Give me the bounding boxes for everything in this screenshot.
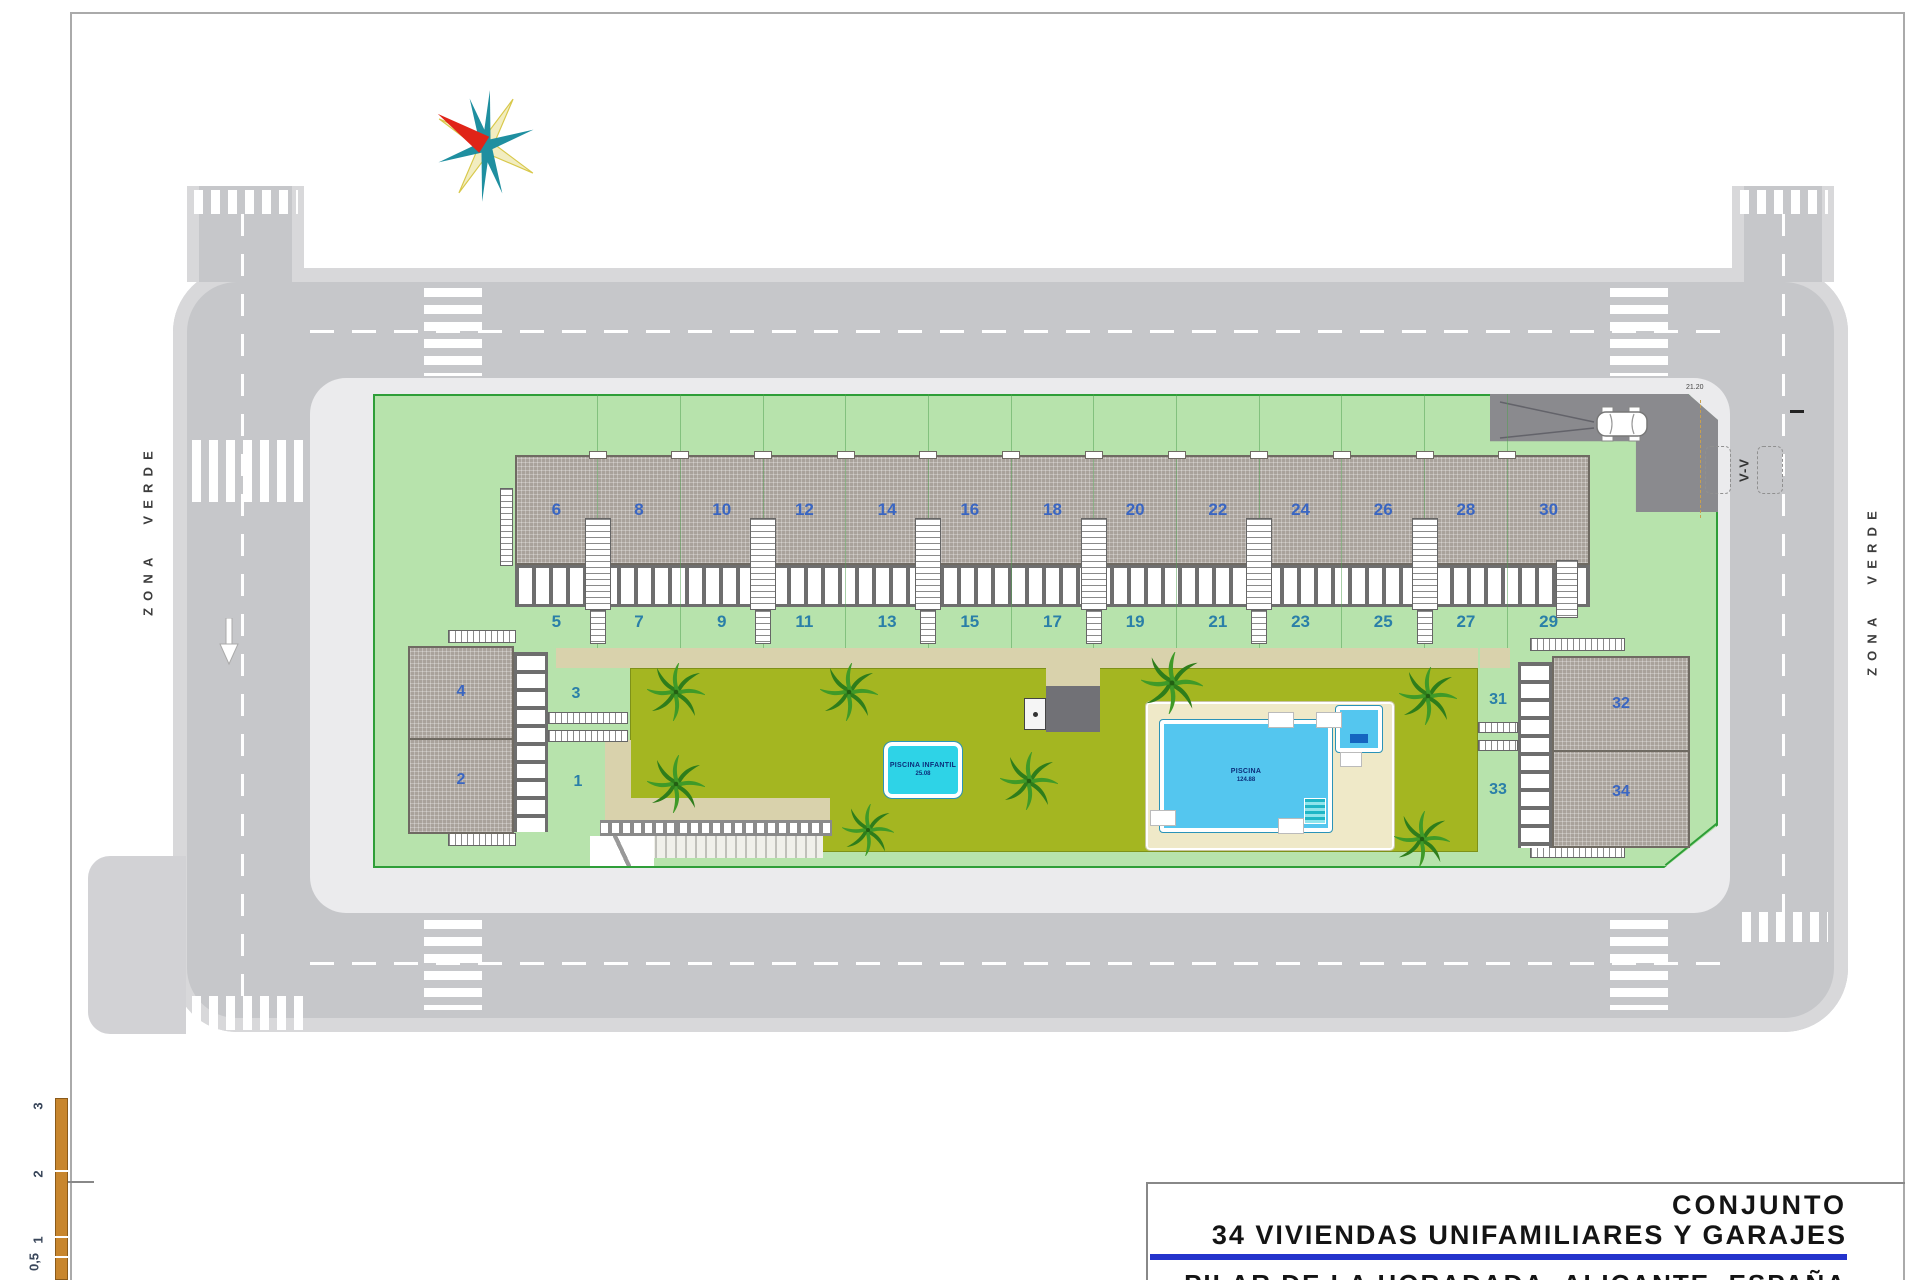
stairwell	[750, 518, 776, 610]
stairs	[1530, 638, 1625, 651]
scale-label: 0,5	[27, 1253, 42, 1271]
palm-tree	[1000, 752, 1058, 810]
palm-tree	[1394, 811, 1450, 867]
plot-divider-line	[1011, 394, 1012, 648]
stairwell	[1081, 518, 1107, 610]
section-marker: V-V	[1737, 458, 1752, 482]
stairwell	[585, 518, 611, 610]
stairwell-lower	[1417, 610, 1433, 644]
titleblock-divider	[1146, 1182, 1148, 1280]
lane-line	[241, 214, 244, 998]
roof-notch	[1085, 451, 1103, 459]
frame-left	[70, 12, 72, 1280]
plot-divider-line	[1176, 394, 1177, 648]
roof-notch	[1002, 451, 1020, 459]
palm-tree	[647, 663, 705, 721]
project-title: 34 VIVIENDAS UNIFAMILIARES Y GARAJES	[1150, 1220, 1847, 1250]
spa-pool	[1336, 706, 1382, 752]
crosswalk	[1742, 912, 1828, 942]
scale-label: 2	[31, 1170, 46, 1177]
pool-pad	[1150, 810, 1176, 826]
titleblock-separator	[1146, 1182, 1905, 1184]
scale-tick	[55, 1256, 68, 1258]
large-pool-area: 124.88	[1237, 777, 1255, 785]
pool-steps	[1304, 798, 1326, 824]
roof-notch	[671, 451, 689, 459]
garden-access-stairs	[548, 712, 628, 724]
roof-notch	[919, 451, 937, 459]
stairwell	[1556, 560, 1578, 618]
stairwell-lower	[1251, 610, 1267, 644]
parking-outline	[1757, 446, 1783, 494]
roof-notch	[837, 451, 855, 459]
stairwell	[500, 488, 513, 566]
north-tick	[1790, 410, 1804, 413]
house-number: 34	[1612, 783, 1630, 801]
left-building-divider	[408, 738, 514, 740]
house-number: 32	[1612, 695, 1630, 713]
palm-tree	[842, 804, 894, 856]
crosswalk	[1610, 920, 1668, 1010]
plot-divider-line	[1507, 394, 1508, 648]
house-number: 3	[572, 685, 581, 703]
zona-verde-left-label: ZONA VERDE	[141, 444, 156, 616]
roof-notch	[1498, 451, 1516, 459]
pool-pad	[1340, 752, 1362, 767]
roof-notch	[754, 451, 772, 459]
palm-tree	[647, 755, 705, 813]
left-building-roof	[408, 646, 514, 834]
stairwell	[1246, 518, 1272, 610]
scale-bar	[55, 1098, 68, 1280]
house-number: 1	[574, 773, 583, 791]
title-accent-rule	[1150, 1254, 1847, 1260]
frame-right	[1903, 12, 1905, 1280]
crosswalk	[192, 996, 304, 1030]
lane-line	[310, 330, 1730, 333]
pool-pad	[1268, 712, 1294, 728]
garden-path	[605, 798, 830, 822]
scale-tick	[55, 1170, 68, 1172]
stairwell	[915, 518, 941, 610]
small-pool-label: PISCINA INFANTIL	[890, 762, 956, 771]
crosswalk	[424, 920, 482, 1010]
stairwell	[1412, 518, 1438, 610]
frame-top	[70, 12, 1905, 14]
roof-notch	[1168, 451, 1186, 459]
house-number: 2	[457, 771, 466, 789]
scale-label: 3	[31, 1102, 46, 1109]
garden-path	[1480, 648, 1510, 668]
roof-notch	[1250, 451, 1268, 459]
parking-bay	[590, 836, 654, 866]
palm-tree	[1141, 652, 1203, 714]
lane-line	[310, 962, 1730, 965]
stairwell-lower	[920, 610, 936, 644]
palm-tree	[820, 663, 878, 721]
right-building-divider	[1552, 750, 1690, 752]
house-number: 33	[1489, 781, 1507, 799]
project-location: PILAR DE LA HORADADA, ALICANTE, ESPAÑA	[1150, 1269, 1847, 1280]
scale-tick	[55, 1236, 68, 1238]
stairwell-lower	[755, 610, 771, 644]
roof-notch	[1333, 451, 1351, 459]
scale-tick-line	[68, 1181, 94, 1183]
parking-outline	[1705, 446, 1731, 494]
stairs	[448, 630, 516, 643]
house-number: 4	[457, 683, 466, 701]
driveway-dimension: 21.20	[1686, 384, 1704, 391]
right-building-terraces	[1518, 662, 1552, 848]
road-arrow	[218, 618, 240, 666]
shower-equipment	[1024, 698, 1046, 730]
title-block: CONJUNTO 34 VIVIENDAS UNIFAMILIARES Y GA…	[1150, 1190, 1847, 1280]
pergola-square	[1046, 686, 1100, 732]
stairwell-lower	[590, 610, 606, 644]
garden-access-stairs	[1478, 722, 1518, 733]
path-notch	[1046, 664, 1100, 688]
project-type: CONJUNTO	[1150, 1190, 1847, 1220]
roof-notch	[1416, 451, 1434, 459]
pool-pad	[1278, 818, 1304, 834]
plot-divider-line	[845, 394, 846, 648]
plot-divider-line	[1341, 394, 1342, 648]
pergola-bar	[600, 820, 832, 836]
zona-verde-right-label: ZONA VERDE	[1865, 504, 1880, 676]
car-icon	[1594, 402, 1650, 446]
large-pool-label: PISCINA	[1231, 768, 1262, 777]
palm-tree	[1399, 667, 1457, 725]
small-pool: PISCINA INFANTIL 25.08	[884, 742, 962, 798]
scale-label: 1	[31, 1236, 46, 1243]
lane-line	[1782, 214, 1785, 912]
crosswalk	[192, 440, 304, 502]
right-building-roof	[1552, 656, 1690, 848]
plot-divider-line	[680, 394, 681, 648]
left-building-terraces	[514, 652, 548, 832]
stairs	[448, 833, 516, 846]
spa-bench	[1350, 734, 1368, 743]
road-corner-flare	[88, 856, 186, 1034]
garden-access-stairs	[548, 730, 628, 742]
house-number: 31	[1489, 691, 1507, 709]
compass-rose	[428, 88, 544, 204]
roof-notch	[589, 451, 607, 459]
plot-boundary-dashed	[1700, 400, 1702, 518]
crosswalk	[194, 190, 298, 214]
site-plan-drawing: 21.20 681012141618202224262830 579111315…	[0, 0, 1920, 1280]
garden-access-stairs	[1478, 740, 1518, 751]
pool-pad	[1316, 712, 1342, 728]
small-pool-area: 25.08	[915, 771, 930, 779]
crosswalk	[1740, 190, 1828, 214]
stairwell-lower	[1086, 610, 1102, 644]
